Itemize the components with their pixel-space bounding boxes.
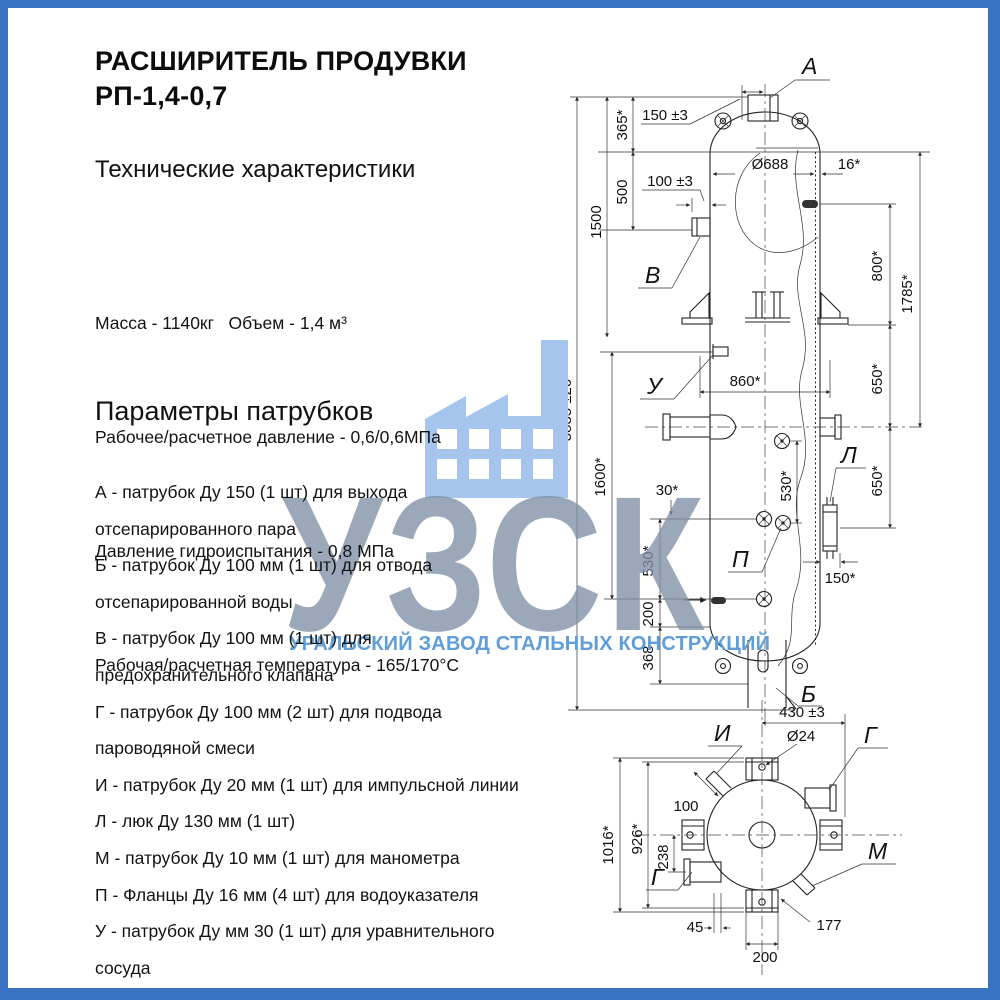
product-drawing-page: 3835 ±20 1500 365* 500 150 ±3 100 ±3 Ø68… [0,0,1000,1000]
page-border [0,0,1000,1000]
